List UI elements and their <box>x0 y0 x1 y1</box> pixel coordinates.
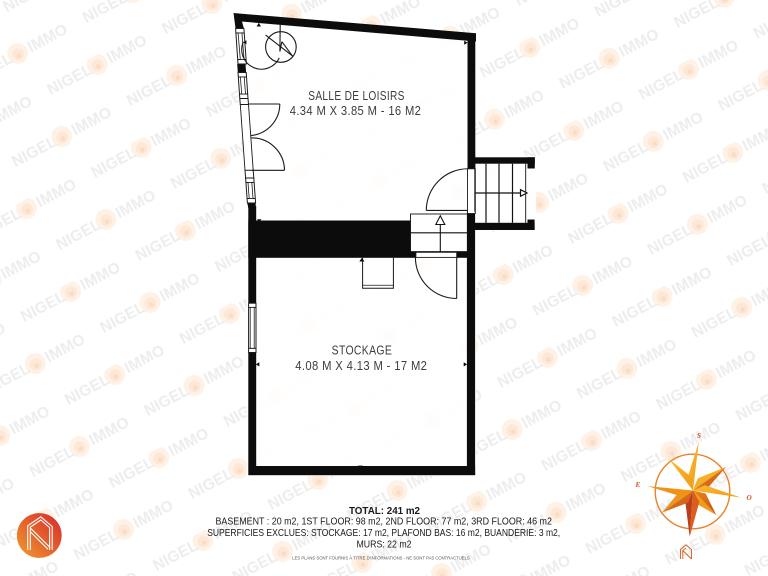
svg-text:STOCKAGE: STOCKAGE <box>332 344 393 358</box>
svg-text:S: S <box>697 432 701 440</box>
svg-text:4.08 M X 4.13 M - 17 M2: 4.08 M X 4.13 M - 17 M2 <box>295 359 427 373</box>
svg-text:SUPERFICIES EXCLUES: STOCKAGE:: SUPERFICIES EXCLUES: STOCKAGE: 17 m2, PL… <box>207 528 560 539</box>
svg-text:TOTAL: 241 m2: TOTAL: 241 m2 <box>349 506 420 517</box>
svg-text:4.34 M X 3.85 M - 16 M2: 4.34 M X 3.85 M - 16 M2 <box>290 104 422 118</box>
svg-text:E: E <box>635 481 641 489</box>
svg-text:O: O <box>747 494 752 502</box>
svg-text:MURS: 22 m2: MURS: 22 m2 <box>357 540 412 551</box>
svg-text:SALLE DE LOISIRS: SALLE DE LOISIRS <box>308 89 405 103</box>
svg-text:LES PLANS SONT FOURNIS À TITRE: LES PLANS SONT FOURNIS À TITRE D'INFORMA… <box>292 554 470 561</box>
svg-text:BASEMENT : 20 m2, 1ST FLOOR: 9: BASEMENT : 20 m2, 1ST FLOOR: 98 m2, 2ND … <box>215 517 552 528</box>
